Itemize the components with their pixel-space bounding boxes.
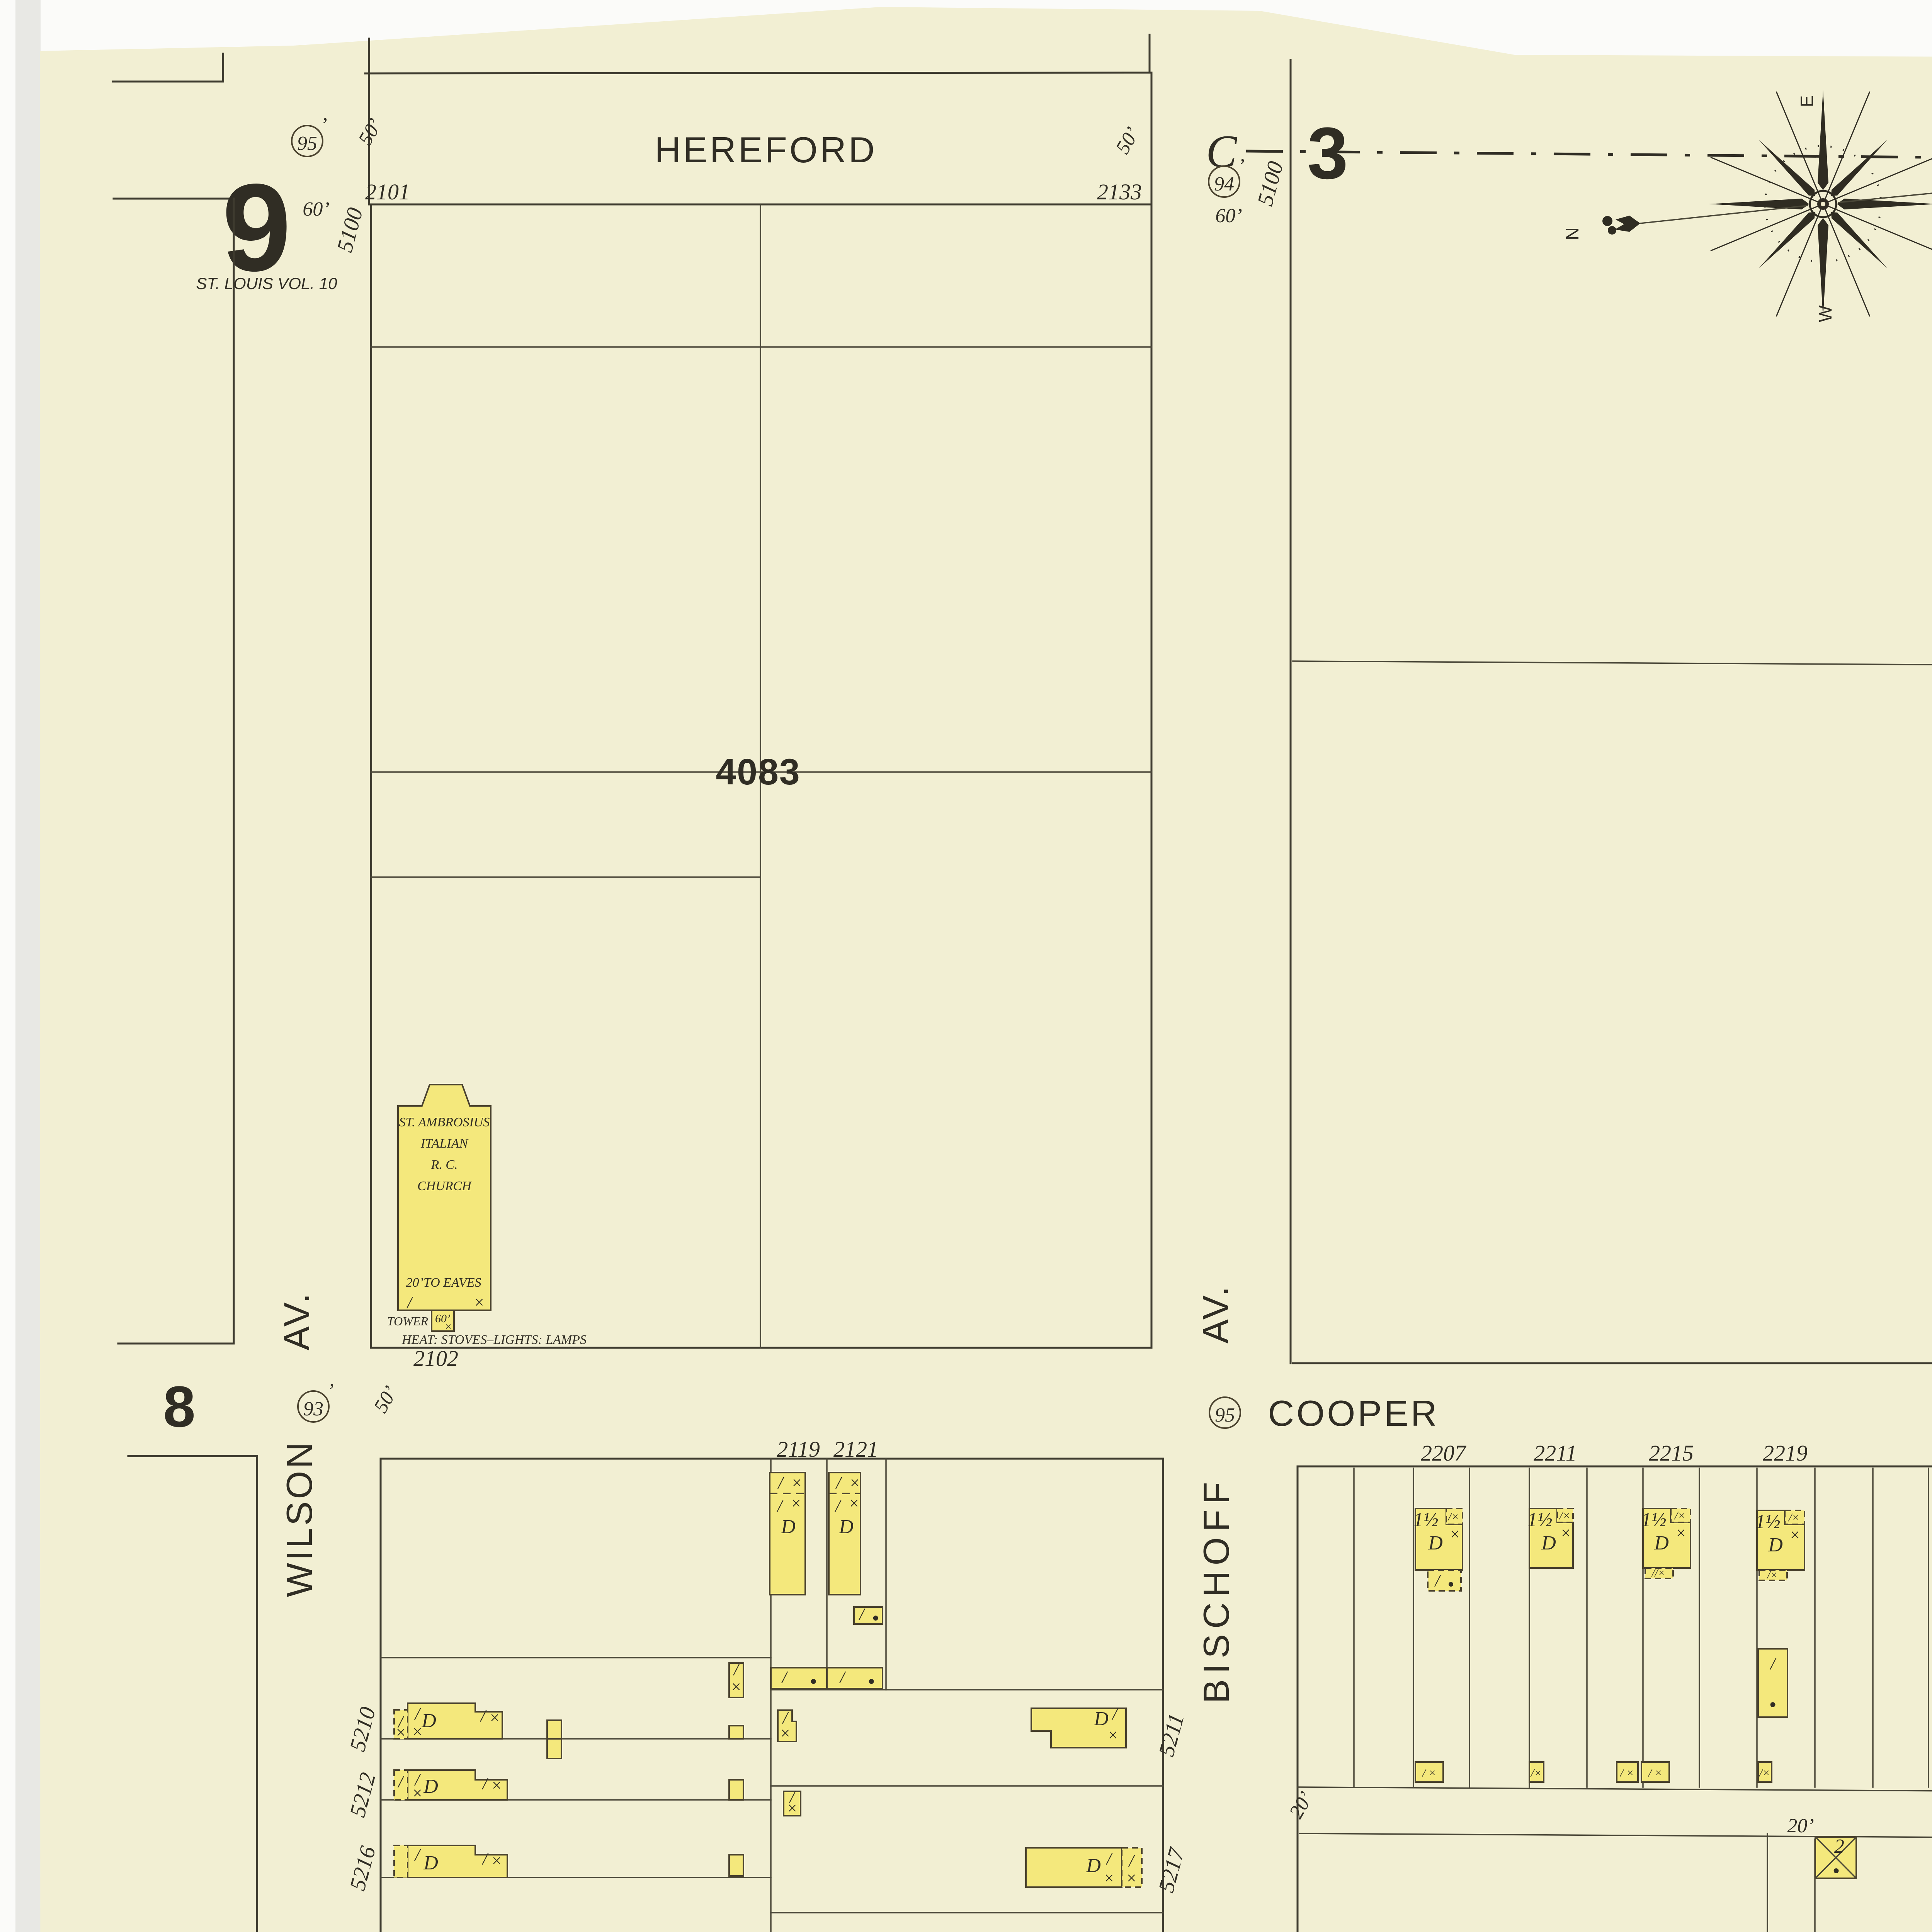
svg-text:/ ×: / ×	[1422, 1767, 1436, 1779]
svg-text:COOPER: COOPER	[1268, 1393, 1439, 1434]
svg-text:3: 3	[1307, 112, 1348, 194]
svg-text:2211: 2211	[1534, 1440, 1577, 1466]
svg-text:/ ×: / ×	[1648, 1767, 1662, 1779]
svg-text:D: D	[421, 1710, 436, 1732]
svg-text:2219: 2219	[1763, 1440, 1808, 1466]
svg-text:×: ×	[395, 1723, 406, 1742]
svg-text:’: ’	[320, 114, 327, 136]
svg-text:2133: 2133	[1097, 179, 1142, 204]
svg-text:2119: 2119	[777, 1437, 820, 1462]
svg-text:60’: 60’	[303, 198, 329, 220]
svg-text:×: ×	[848, 1494, 860, 1513]
svg-text:W: W	[1815, 305, 1835, 322]
svg-text:R. C.: R. C.	[431, 1158, 458, 1172]
svg-text:D: D	[1094, 1708, 1109, 1730]
svg-text:D: D	[423, 1852, 438, 1874]
svg-text:/×: /×	[1788, 1511, 1800, 1524]
svg-text:2215: 2215	[1649, 1440, 1694, 1466]
svg-text:2207: 2207	[1421, 1440, 1466, 1466]
svg-text:WILSON: WILSON	[279, 1440, 320, 1597]
svg-text:×: ×	[412, 1784, 423, 1803]
svg-text:95: 95	[297, 133, 317, 155]
svg-text:BISCHOFF: BISCHOFF	[1196, 1476, 1236, 1703]
svg-text:/×: /×	[1674, 1509, 1686, 1522]
svg-text:TOWER: TOWER	[387, 1314, 429, 1328]
svg-text:8: 8	[163, 1374, 195, 1439]
svg-text:D: D	[781, 1516, 796, 1538]
svg-text:×: ×	[730, 1677, 742, 1696]
svg-text:ST. LOUIS VOL. 10: ST. LOUIS VOL. 10	[196, 274, 338, 293]
svg-text:/×: /×	[1759, 1767, 1770, 1779]
svg-text:/×: /×	[1447, 1510, 1459, 1523]
svg-text:D: D	[1428, 1532, 1443, 1554]
svg-text:HEREFORD: HEREFORD	[655, 129, 877, 170]
svg-text:×: ×	[1675, 1524, 1687, 1543]
svg-text:’: ’	[1238, 155, 1244, 177]
svg-text:×: ×	[412, 1722, 423, 1741]
svg-text:2102: 2102	[413, 1346, 458, 1371]
svg-text:/ ×: / ×	[1619, 1767, 1634, 1779]
svg-text:●: ●	[1833, 1864, 1840, 1877]
svg-text:D: D	[1768, 1534, 1783, 1556]
svg-text:×: ×	[444, 1320, 452, 1333]
svg-text:D: D	[423, 1776, 438, 1798]
svg-text:●: ●	[1769, 1698, 1776, 1711]
svg-text:20’: 20’	[1787, 1815, 1814, 1837]
svg-text:●: ●	[868, 1675, 875, 1687]
svg-text:93: 93	[303, 1398, 323, 1420]
svg-text:1½: 1½	[1527, 1509, 1553, 1531]
svg-text:×: ×	[1107, 1726, 1119, 1745]
svg-text:●: ●	[1448, 1578, 1454, 1590]
svg-text:1½: 1½	[1641, 1509, 1667, 1531]
svg-text:●: ●	[810, 1675, 817, 1687]
svg-text:ITALIAN: ITALIAN	[420, 1136, 469, 1151]
svg-text:×: ×	[489, 1708, 500, 1727]
svg-text:×: ×	[491, 1776, 502, 1795]
svg-text:2101: 2101	[365, 179, 410, 204]
svg-text:HEAT: STOVES–LIGHTS: LAMPS: HEAT: STOVES–LIGHTS: LAMPS	[401, 1333, 587, 1347]
svg-text:AV.: AV.	[276, 1291, 317, 1350]
svg-text:CHURCH: CHURCH	[417, 1179, 472, 1193]
svg-text:●: ●	[872, 1611, 879, 1624]
svg-text:ST. AMBROSIUS: ST. AMBROSIUS	[399, 1115, 490, 1129]
svg-text:’: ’	[327, 1380, 333, 1402]
svg-text:×: ×	[779, 1724, 791, 1743]
svg-text:×: ×	[1560, 1524, 1571, 1543]
svg-text:D: D	[1654, 1532, 1669, 1554]
svg-text:60’: 60’	[1215, 205, 1242, 227]
svg-text:/×: /×	[1559, 1509, 1571, 1522]
svg-text:1½: 1½	[1755, 1511, 1781, 1533]
svg-text:D: D	[1541, 1532, 1556, 1554]
svg-text:4083: 4083	[716, 752, 800, 793]
svg-text:/×: /×	[1767, 1569, 1778, 1581]
svg-text:2121: 2121	[833, 1437, 878, 1462]
svg-text:×: ×	[473, 1293, 485, 1312]
svg-text:D: D	[838, 1516, 854, 1538]
svg-text:×: ×	[1789, 1526, 1801, 1544]
svg-text:×: ×	[1126, 1869, 1137, 1888]
svg-text:1½: 1½	[1413, 1509, 1439, 1531]
svg-text:×: ×	[786, 1799, 798, 1818]
svg-text:2: 2	[1834, 1835, 1844, 1857]
svg-text:AV.: AV.	[1195, 1284, 1236, 1344]
svg-text:95: 95	[1215, 1404, 1235, 1426]
svg-text:×: ×	[1449, 1525, 1461, 1544]
svg-text://×: //×	[1651, 1567, 1665, 1579]
svg-text:×: ×	[791, 1473, 803, 1492]
svg-text:E: E	[1797, 95, 1817, 107]
svg-text:/×: /×	[1530, 1767, 1542, 1779]
svg-text:N: N	[1562, 227, 1582, 240]
svg-text:×: ×	[849, 1473, 861, 1492]
svg-text:20’TO EAVES: 20’TO EAVES	[406, 1276, 481, 1290]
svg-text:×: ×	[491, 1851, 502, 1870]
svg-text:×: ×	[1103, 1869, 1115, 1888]
svg-text:94: 94	[1214, 173, 1234, 195]
svg-text:D: D	[1086, 1855, 1101, 1877]
svg-text:×: ×	[790, 1494, 802, 1513]
